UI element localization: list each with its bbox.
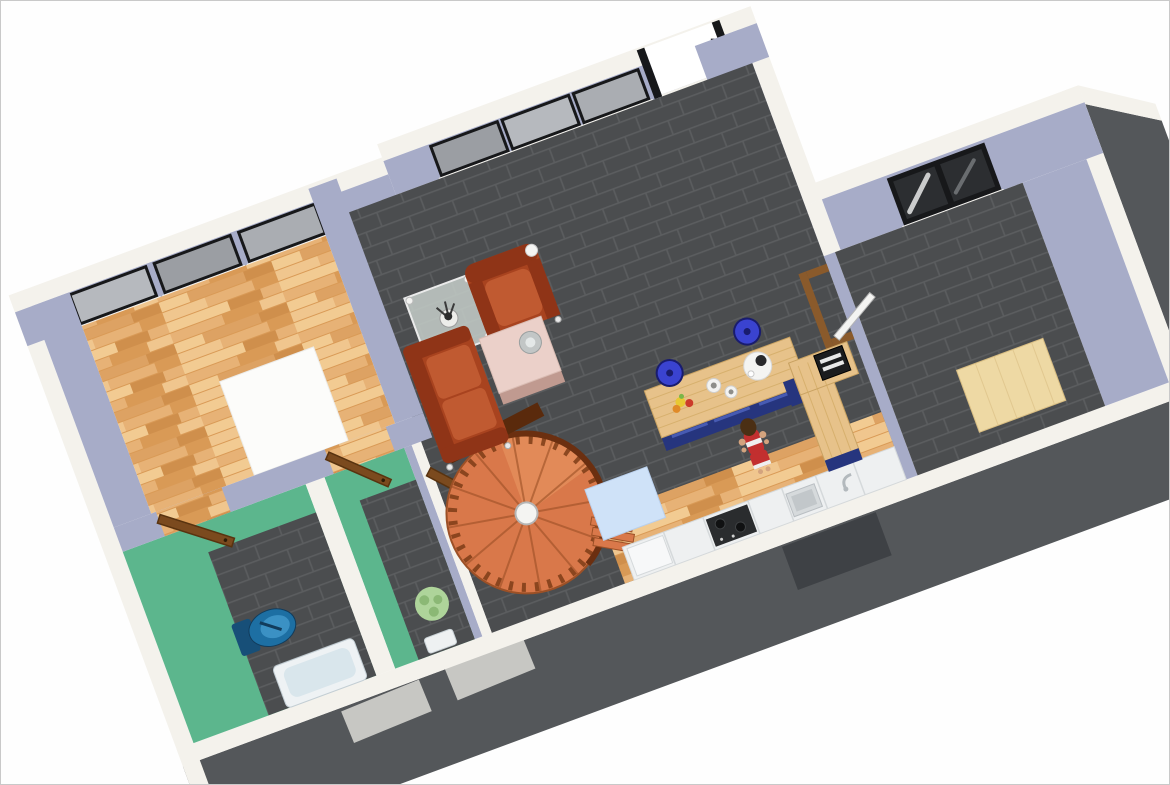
floorplan-3d-view[interactable] [1, 1, 1170, 785]
screenshot-frame [0, 0, 1170, 785]
